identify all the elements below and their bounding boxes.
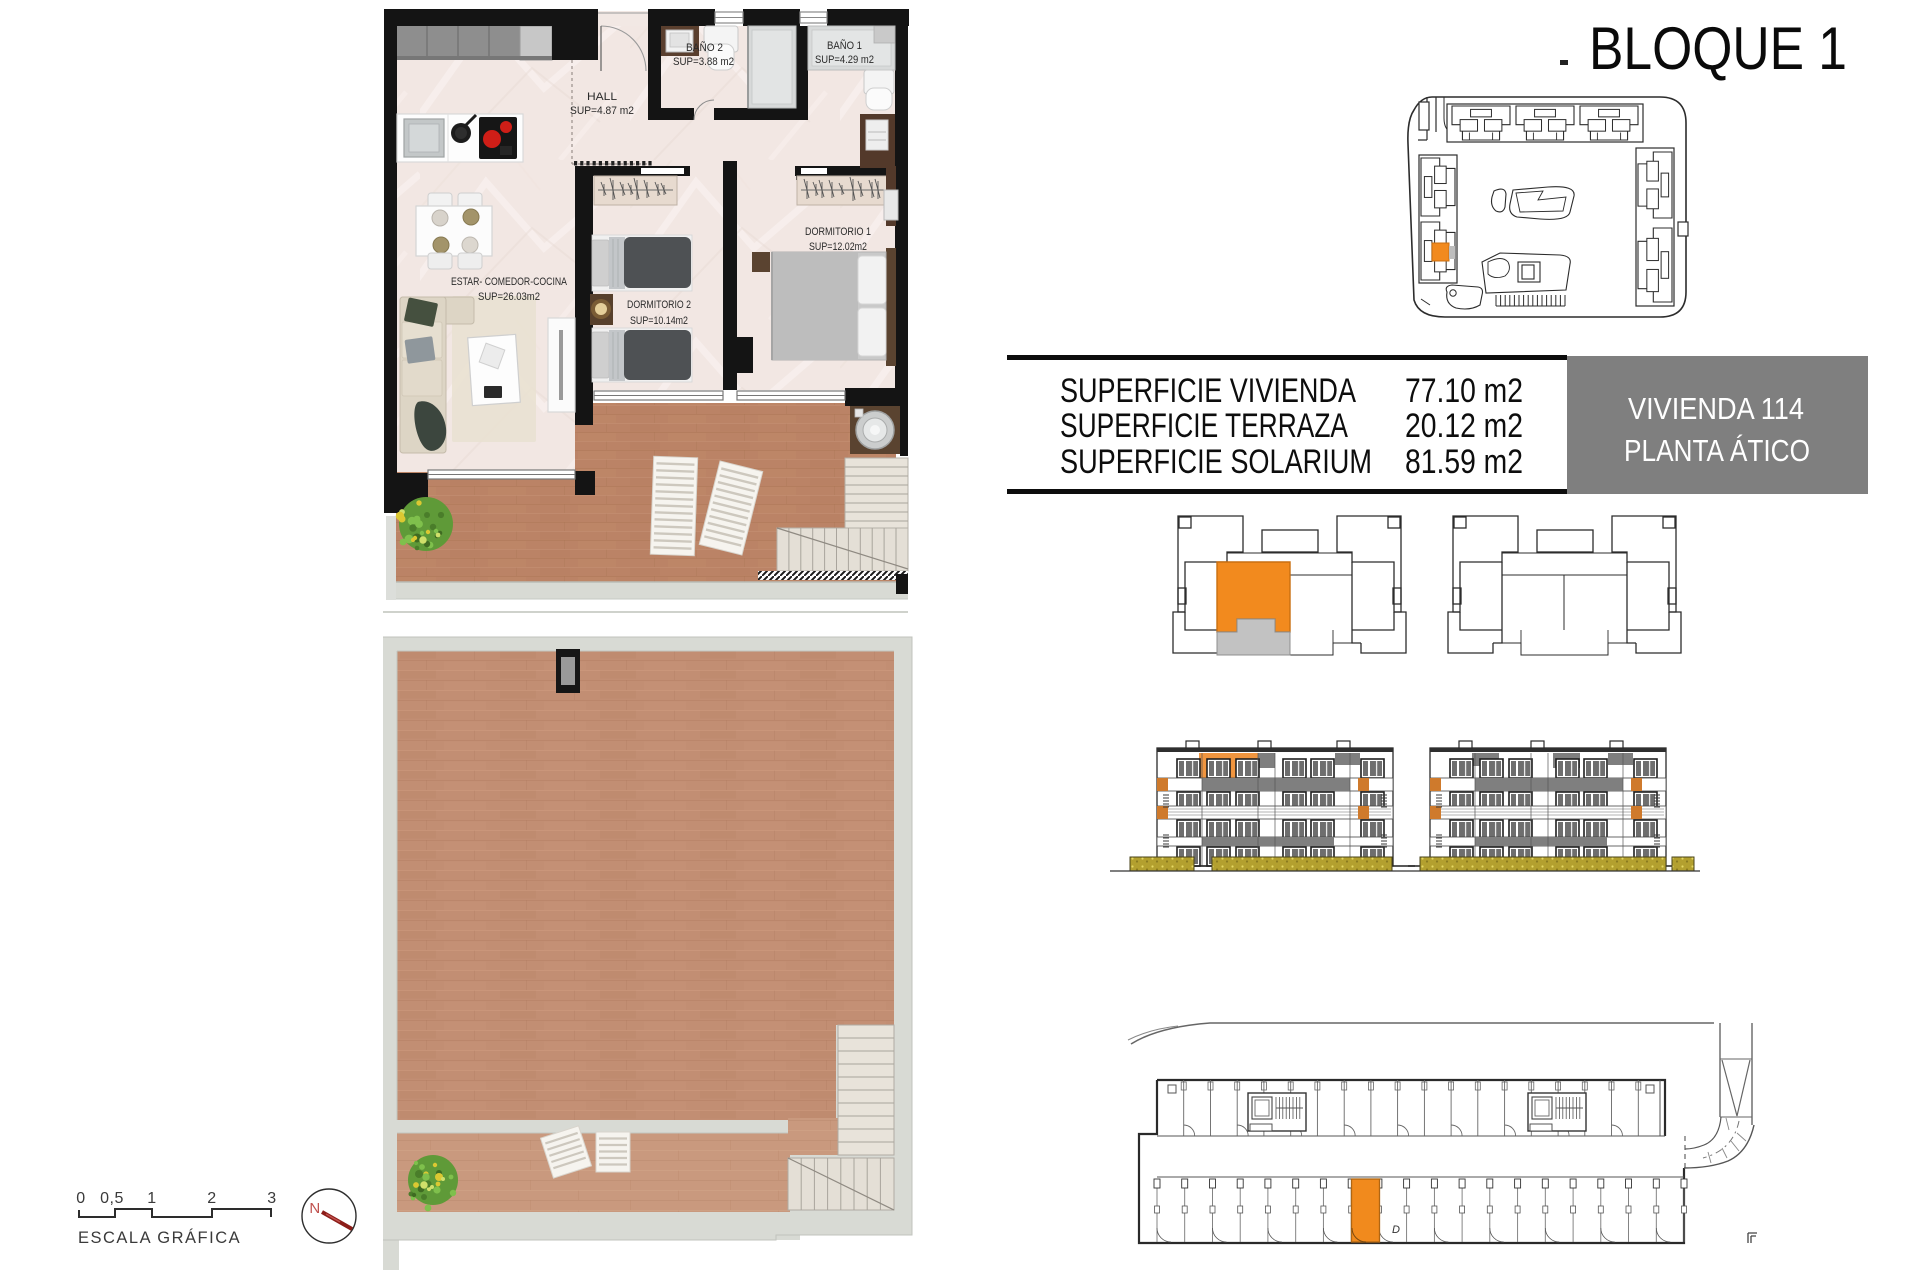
svg-text:SUP=26.03m2: SUP=26.03m2 <box>478 291 540 303</box>
svg-text:3: 3 <box>267 1190 276 1207</box>
svg-text:PLANTA ÁTICO: PLANTA ÁTICO <box>1624 433 1810 468</box>
svg-text:SUPERFICIE TERRAZA: SUPERFICIE TERRAZA <box>1060 407 1348 445</box>
svg-text:VIVIENDA 114: VIVIENDA 114 <box>1628 391 1804 426</box>
svg-text:81.59 m2: 81.59 m2 <box>1405 443 1523 481</box>
svg-text:SUP=4.29 m2: SUP=4.29 m2 <box>815 54 874 66</box>
svg-text:D: D <box>1392 1224 1400 1236</box>
svg-text:77.10 m2: 77.10 m2 <box>1405 372 1523 410</box>
svg-text:BAÑO 1: BAÑO 1 <box>827 39 862 52</box>
svg-text:DORMITORIO 2: DORMITORIO 2 <box>627 299 691 311</box>
svg-text:DORMITORIO 1: DORMITORIO 1 <box>805 226 871 238</box>
svg-text:SUPERFICIE VIVIENDA: SUPERFICIE VIVIENDA <box>1060 372 1356 410</box>
svg-text:ESTAR- COMEDOR-COCINA: ESTAR- COMEDOR-COCINA <box>451 276 568 288</box>
svg-text:SUP=12.02m2: SUP=12.02m2 <box>809 241 867 253</box>
svg-text:SUPERFICIE SOLARIUM: SUPERFICIE SOLARIUM <box>1060 443 1372 481</box>
svg-text:SUP=3.88 m2: SUP=3.88 m2 <box>673 56 734 68</box>
svg-text:0,5: 0,5 <box>100 1190 124 1207</box>
svg-text:1: 1 <box>147 1190 156 1207</box>
svg-text:SUP=10.14m2: SUP=10.14m2 <box>630 315 688 327</box>
svg-text:SUP=4.87 m2: SUP=4.87 m2 <box>570 105 634 117</box>
svg-text:2: 2 <box>207 1190 216 1207</box>
svg-text:HALL: HALL <box>587 91 617 103</box>
svg-text:ESCALA GRÁFICA: ESCALA GRÁFICA <box>78 1228 241 1247</box>
svg-text:N: N <box>309 1200 320 1217</box>
svg-text:0: 0 <box>76 1190 85 1207</box>
svg-text:BLOQUE 1: BLOQUE 1 <box>1589 15 1847 82</box>
svg-text:BAÑO 2: BAÑO 2 <box>686 41 723 54</box>
svg-text:20.12 m2: 20.12 m2 <box>1405 407 1523 445</box>
